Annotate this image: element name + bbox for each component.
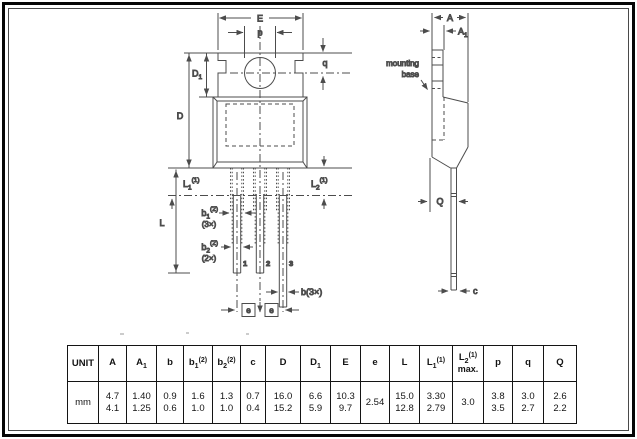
table-value-cell: 2.54 — [361, 382, 389, 423]
dim-label-c: c — [473, 286, 478, 296]
mounting-base-arrow — [421, 80, 428, 90]
dim-label-D: D — [177, 111, 184, 121]
table-header-cell: e — [361, 346, 389, 382]
table-value-cell: 3.0 — [453, 382, 483, 423]
table-value-cell: 3.83.5 — [484, 382, 512, 423]
table-header-cell: b2(2) — [213, 346, 240, 382]
dim-b2-count: (2×) — [202, 254, 217, 263]
table-column: e 2.54 — [361, 346, 390, 423]
front-view: E p — [159, 13, 352, 317]
table-value-cell: 3.302.79 — [420, 382, 452, 423]
dim-label-q: q — [322, 58, 327, 68]
package-outline-drawing: E p — [0, 0, 637, 340]
dim-label-b: b(3×) — [301, 287, 322, 297]
table-column: b2(2) 1.31.0 — [213, 346, 241, 423]
dim-label-D1: D1 — [192, 69, 203, 82]
table-column: L1(1) 3.302.79 — [420, 346, 453, 423]
side-lead — [451, 168, 457, 290]
table-column: A 4.74.1 — [99, 346, 127, 423]
table-value-cell: 1.31.0 — [213, 382, 240, 423]
table-column: L 15.012.8 — [390, 346, 420, 423]
dim-label-e1: e — [246, 306, 251, 315]
table-column: L2(1)max. 3.0 — [453, 346, 484, 423]
table-header-cell: b1(2) — [184, 346, 212, 382]
table-value-cell: 10.39.7 — [331, 382, 360, 423]
pin-1-label: 1 — [243, 259, 247, 268]
table-header-cell: L1(1) — [420, 346, 452, 382]
table-header-cell: D1 — [301, 346, 330, 382]
table-header-cell: E — [331, 346, 360, 382]
table-header-cell: p — [484, 346, 512, 382]
dim-label-b2: b2(2) — [201, 240, 218, 255]
table-value-cell: 15.012.8 — [390, 382, 419, 423]
dim-label-A: A — [447, 13, 453, 23]
table-value-cell: 2.62.2 — [544, 382, 576, 423]
table-column: A1 1.401.25 — [127, 346, 157, 423]
centerlines — [230, 26, 352, 312]
scan-marks — [120, 333, 249, 334]
side-view: A A1 — [386, 13, 478, 296]
table-column: D 16.015.2 — [266, 346, 301, 423]
table-column: E 10.39.7 — [331, 346, 361, 423]
table-header-cell: UNIT — [68, 346, 98, 382]
table-value-cell: 1.61.0 — [184, 382, 212, 423]
side-body-outline — [432, 97, 468, 168]
table-column: b1(2) 1.61.0 — [184, 346, 213, 423]
table-header-cell: A1 — [127, 346, 156, 382]
table-value-cell: mm — [68, 382, 98, 423]
table-header-cell: D — [266, 346, 300, 382]
dim-b1-count: (3×) — [202, 220, 217, 229]
table-value-cell: 4.74.1 — [99, 382, 126, 423]
dim-A1-lines — [420, 25, 456, 50]
dim-label-Q: Q — [436, 197, 443, 207]
dim-label-A1: A1 — [458, 27, 468, 40]
dim-label-b1: b1(2) — [201, 206, 218, 221]
table-header-cell: L2(1)max. — [453, 346, 483, 382]
table-header-cell: b — [157, 346, 183, 382]
dim-e-lines — [221, 302, 299, 317]
table-value-cell: 1.401.25 — [127, 382, 156, 423]
table-column: b 0.90.6 — [157, 346, 184, 423]
package-outline-drawing-page: E p — [0, 0, 637, 439]
table-header-cell: A — [99, 346, 126, 382]
side-tab-outline — [432, 50, 443, 157]
table-column: p 3.83.5 — [484, 346, 513, 423]
pin-3-label: 3 — [289, 259, 293, 268]
mounting-base-label-line1: mounting — [386, 59, 419, 68]
dimensions-table: UNIT mm A 4.74.1 A1 1.401.25 b 0.90.6 b1… — [67, 345, 577, 424]
table-header-cell: L — [390, 346, 419, 382]
table-header-cell: Q — [544, 346, 576, 382]
table-value-cell: 3.02.7 — [513, 382, 543, 423]
dim-label-E: E — [257, 14, 263, 24]
table-column-unit: UNIT mm — [68, 346, 99, 423]
table-column: D1 6.65.9 — [301, 346, 331, 423]
table-column: c 0.70.4 — [241, 346, 266, 423]
dim-label-e2: e — [269, 306, 274, 315]
table-column: Q 2.62.2 — [544, 346, 576, 423]
dim-label-L2: L2(1) — [311, 177, 328, 192]
table-value-cell: 16.015.2 — [266, 382, 300, 423]
table-value-cell: 0.90.6 — [157, 382, 183, 423]
table-value-cell: 0.70.4 — [241, 382, 265, 423]
pin-2-label: 2 — [266, 259, 270, 268]
table-header-cell: c — [241, 346, 265, 382]
mounting-base-label-line2: base — [402, 70, 420, 79]
table-column: q 3.02.7 — [513, 346, 544, 423]
dim-label-L: L — [159, 218, 164, 228]
table-value-cell: 6.65.9 — [301, 382, 330, 423]
dim-label-L1: L1(1) — [183, 177, 200, 192]
table-header-cell: q — [513, 346, 543, 382]
